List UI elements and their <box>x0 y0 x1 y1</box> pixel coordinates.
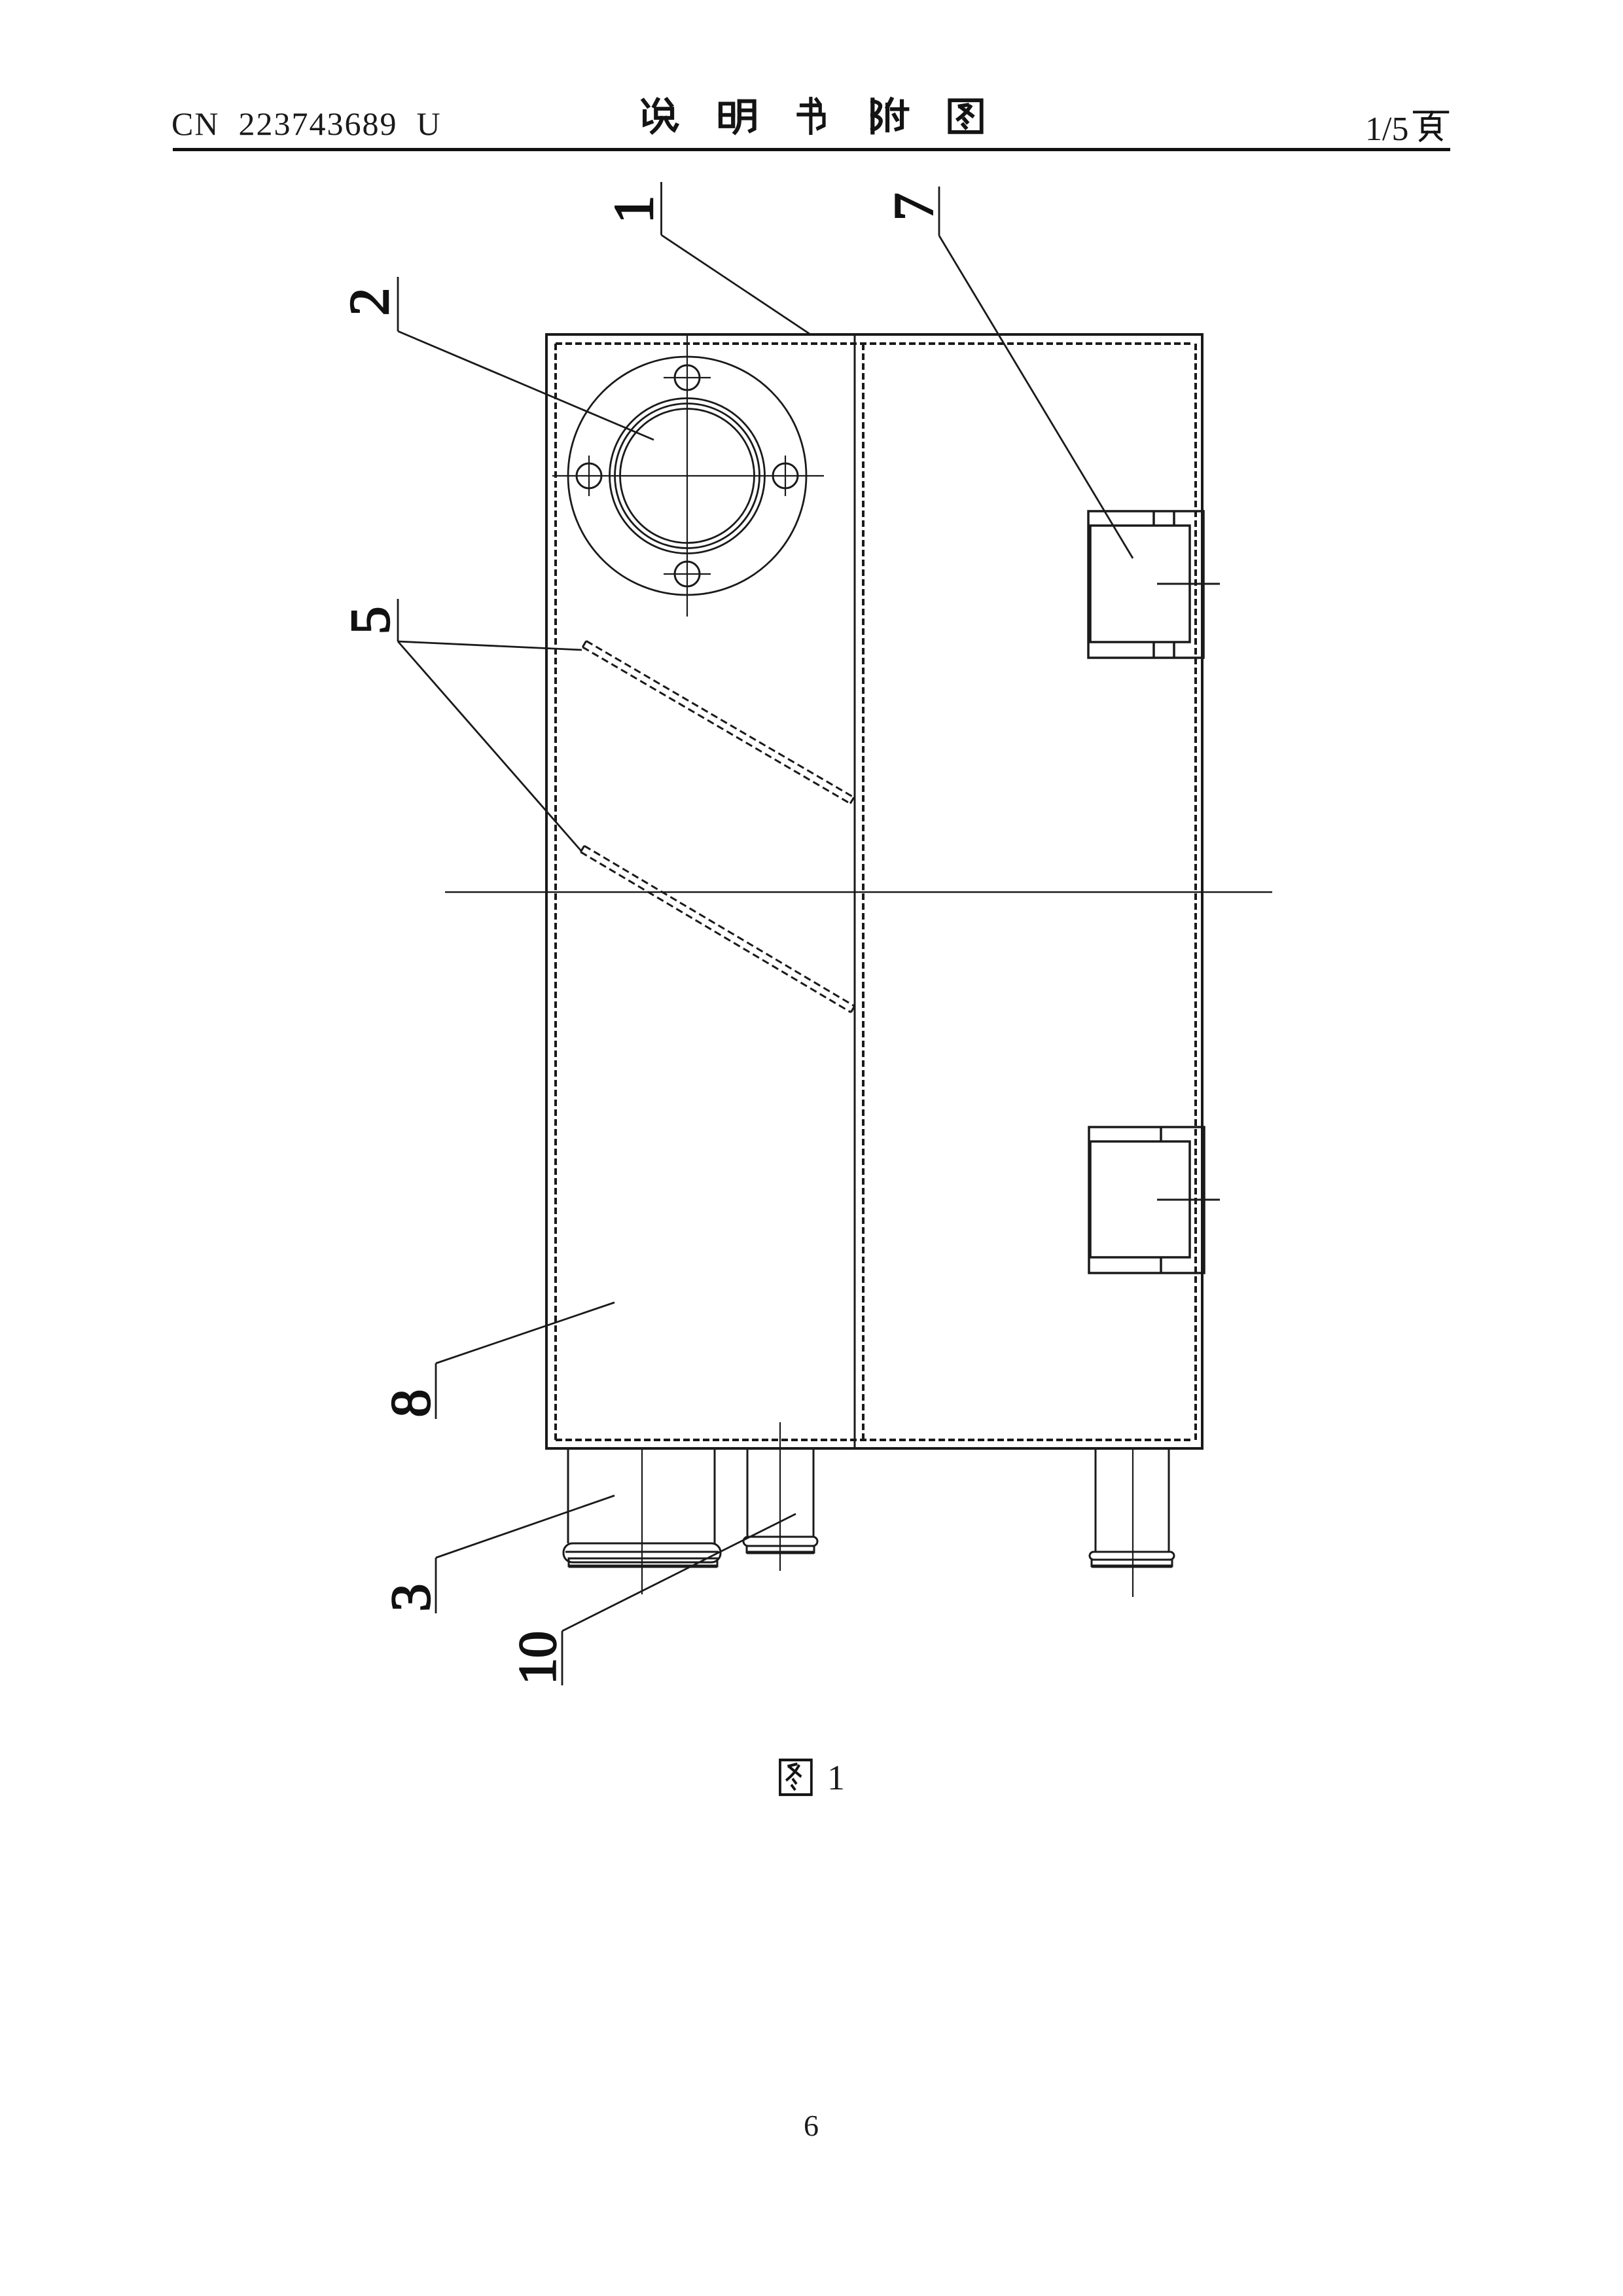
svg-text:3: 3 <box>379 1584 442 1612</box>
svg-text:1: 1 <box>602 196 665 224</box>
svg-text:2: 2 <box>338 288 401 316</box>
svg-text:10: 10 <box>508 1631 567 1685</box>
svg-text:5: 5 <box>338 607 401 635</box>
svg-text:7: 7 <box>882 193 945 221</box>
svg-text:8: 8 <box>379 1390 442 1418</box>
